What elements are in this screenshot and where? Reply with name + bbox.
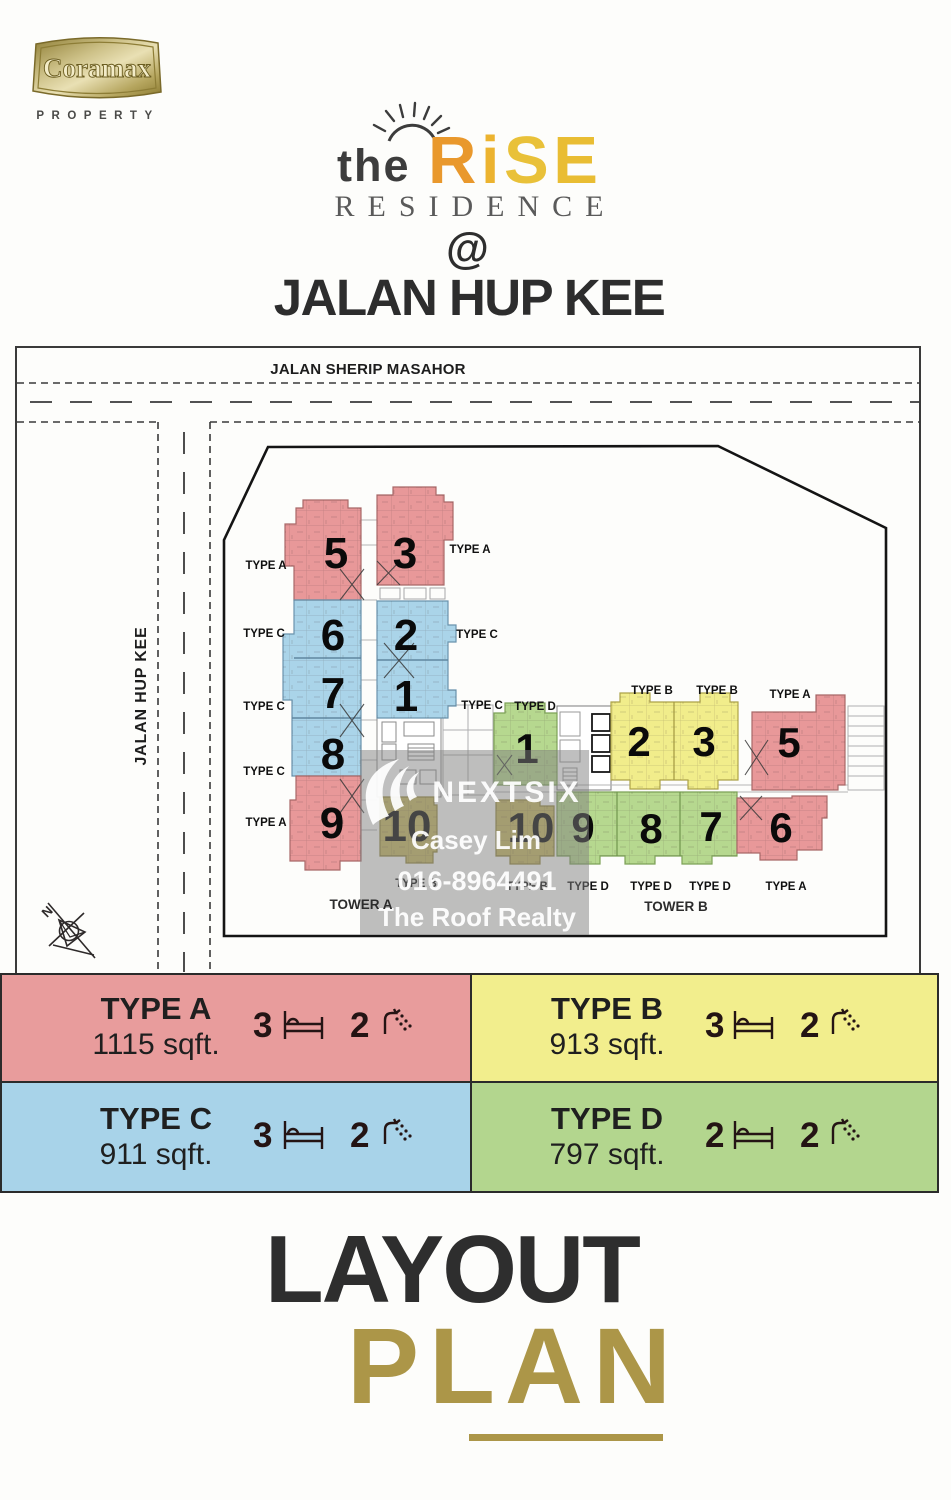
svg-text:7: 7 bbox=[699, 803, 722, 850]
svg-text:8: 8 bbox=[321, 730, 345, 779]
svg-text:2: 2 bbox=[800, 1116, 819, 1155]
svg-text:TYPE D: TYPE D bbox=[689, 881, 731, 893]
svg-text:016-8964491: 016-8964491 bbox=[397, 866, 556, 896]
svg-text:TYPE A: TYPE A bbox=[449, 544, 490, 556]
svg-text:5: 5 bbox=[324, 529, 348, 578]
svg-text:JALAN SHERIP MASAHOR: JALAN SHERIP MASAHOR bbox=[270, 361, 465, 378]
svg-text:TYPE C: TYPE C bbox=[243, 628, 285, 640]
svg-text:TYPE A: TYPE A bbox=[245, 817, 286, 829]
svg-text:3: 3 bbox=[253, 1116, 272, 1155]
svg-text:6: 6 bbox=[321, 611, 345, 660]
svg-text:5: 5 bbox=[777, 719, 800, 766]
svg-text:3: 3 bbox=[692, 718, 715, 765]
svg-text:TYPE D: TYPE D bbox=[630, 881, 672, 893]
svg-text:TOWER A: TOWER A bbox=[330, 897, 393, 912]
svg-text:TYPE D: TYPE D bbox=[514, 701, 556, 713]
svg-text:7: 7 bbox=[321, 669, 345, 718]
svg-text:TYPE C: TYPE C bbox=[456, 629, 498, 641]
svg-text:2: 2 bbox=[800, 1006, 819, 1045]
svg-text:3: 3 bbox=[705, 1006, 724, 1045]
svg-text:TYPE C: TYPE C bbox=[243, 701, 285, 713]
svg-text:3: 3 bbox=[393, 529, 417, 578]
svg-text:TYPE A: TYPE A bbox=[769, 689, 810, 701]
svg-text:3: 3 bbox=[253, 1006, 272, 1045]
svg-text:NEXTSIX: NEXTSIX bbox=[432, 776, 581, 809]
svg-text:2: 2 bbox=[350, 1006, 369, 1045]
svg-text:2: 2 bbox=[350, 1116, 369, 1155]
svg-text:TYPE C: TYPE C bbox=[243, 766, 285, 778]
svg-text:TYPE A: TYPE A bbox=[245, 560, 286, 572]
svg-text:The Roof Realty: The Roof Realty bbox=[378, 902, 576, 932]
svg-text:JALAN HUP KEE: JALAN HUP KEE bbox=[133, 626, 150, 765]
svg-text:TYPE C: TYPE C bbox=[461, 700, 503, 712]
svg-text:TYPE A: TYPE A bbox=[765, 881, 806, 893]
svg-text:2: 2 bbox=[627, 718, 650, 765]
svg-text:1: 1 bbox=[394, 672, 418, 721]
svg-text:2: 2 bbox=[705, 1116, 724, 1155]
svg-text:TOWER B: TOWER B bbox=[644, 899, 708, 914]
svg-text:6: 6 bbox=[769, 804, 792, 851]
svg-text:2: 2 bbox=[394, 611, 418, 660]
svg-text:9: 9 bbox=[320, 799, 344, 848]
svg-text:8: 8 bbox=[639, 805, 662, 852]
svg-text:N: N bbox=[39, 903, 56, 920]
svg-text:TYPE B: TYPE B bbox=[696, 685, 738, 697]
svg-text:Casey Lim: Casey Lim bbox=[411, 825, 541, 855]
svg-text:TYPE B: TYPE B bbox=[631, 685, 673, 697]
